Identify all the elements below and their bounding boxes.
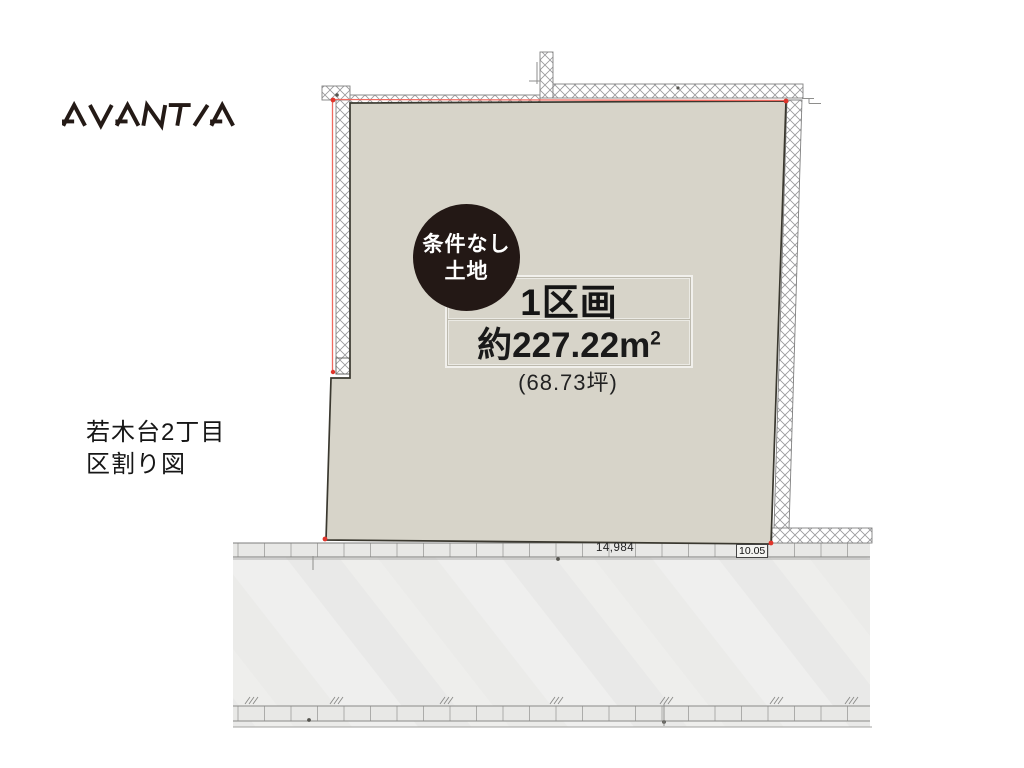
lot-area-value: 約227.22 [477, 326, 619, 365]
sidewalk-strip-top [233, 543, 870, 557]
flyer-page: 若木台2丁目 区割り図 条件なし 土地 1区画 約227.22m2 (68.73… [0, 0, 1024, 768]
lot-area-sqm: 約227.22m2 [477, 317, 661, 368]
badge-line2: 土地 [445, 258, 489, 285]
map-title: 若木台2丁目 区割り図 [86, 417, 225, 481]
avantia-logo [62, 95, 238, 137]
lot-area-tsubo: (68.73坪) [447, 365, 689, 397]
map-title-line1: 若木台2丁目 [86, 417, 225, 449]
road-area [233, 543, 872, 727]
map-title-line2: 区割り図 [86, 449, 225, 481]
dimension-frontage: 14,984 [596, 542, 634, 554]
no-condition-badge: 条件なし 土地 [413, 204, 520, 311]
lot-area-unit: m [619, 326, 650, 365]
sidewalk-strip-bottom [233, 706, 870, 721]
dimension-road-width: 10.05 [736, 544, 768, 558]
badge-line1: 条件なし [423, 231, 511, 258]
avantia-wordmark-icon [62, 95, 238, 137]
lot-area-unit-sup: 2 [650, 328, 661, 349]
